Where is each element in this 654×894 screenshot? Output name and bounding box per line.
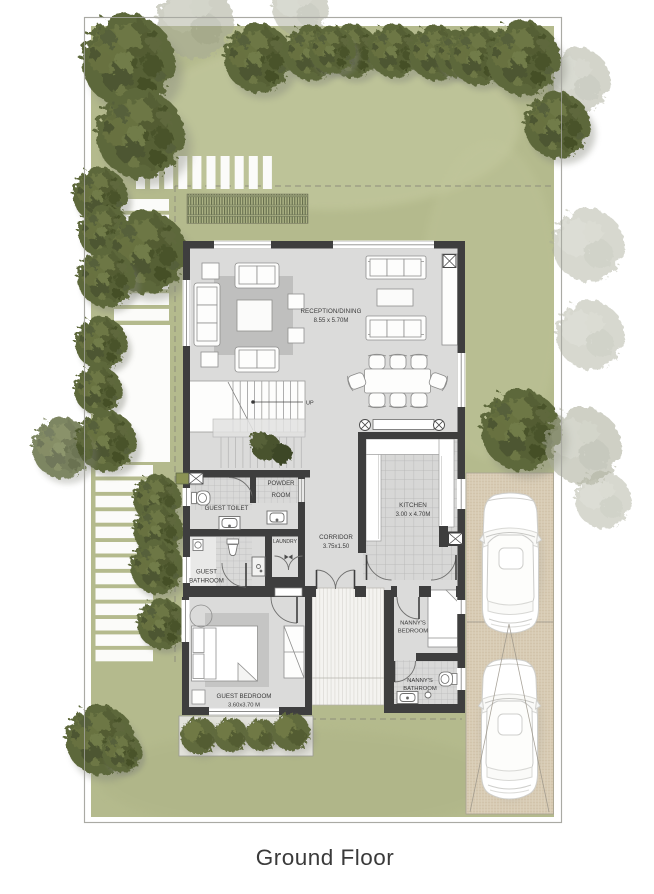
svg-text:BATHROOM: BATHROOM — [403, 686, 437, 692]
svg-text:NANNY'S: NANNY'S — [407, 678, 433, 684]
svg-text:POWDER: POWDER — [268, 481, 296, 487]
svg-text:3.60x3.70 M: 3.60x3.70 M — [228, 703, 260, 709]
svg-text:NANNY'S: NANNY'S — [400, 621, 426, 627]
svg-text:BATHROOM: BATHROOM — [189, 578, 224, 585]
svg-text:8.55 x 5.70M: 8.55 x 5.70M — [314, 318, 349, 324]
svg-text:RECEPTION/DINING: RECEPTION/DINING — [300, 308, 361, 315]
svg-text:GUEST: GUEST — [196, 569, 217, 576]
svg-text:KITCHEN: KITCHEN — [399, 502, 427, 509]
svg-text:GUEST TOILET: GUEST TOILET — [205, 505, 249, 512]
svg-text:UP: UP — [306, 401, 314, 407]
svg-text:CORRIDOR: CORRIDOR — [319, 534, 353, 541]
svg-text:Ground Floor: Ground Floor — [256, 845, 395, 870]
svg-text:BEDROOM: BEDROOM — [398, 629, 429, 635]
svg-text:3.00 x 4.70M: 3.00 x 4.70M — [396, 512, 431, 518]
svg-text:ROOM: ROOM — [272, 493, 291, 499]
svg-text:3.75x1.50: 3.75x1.50 — [323, 544, 350, 550]
svg-text:GUEST BEDROOM: GUEST BEDROOM — [217, 693, 272, 700]
svg-text:LAUNDRY: LAUNDRY — [273, 539, 297, 545]
